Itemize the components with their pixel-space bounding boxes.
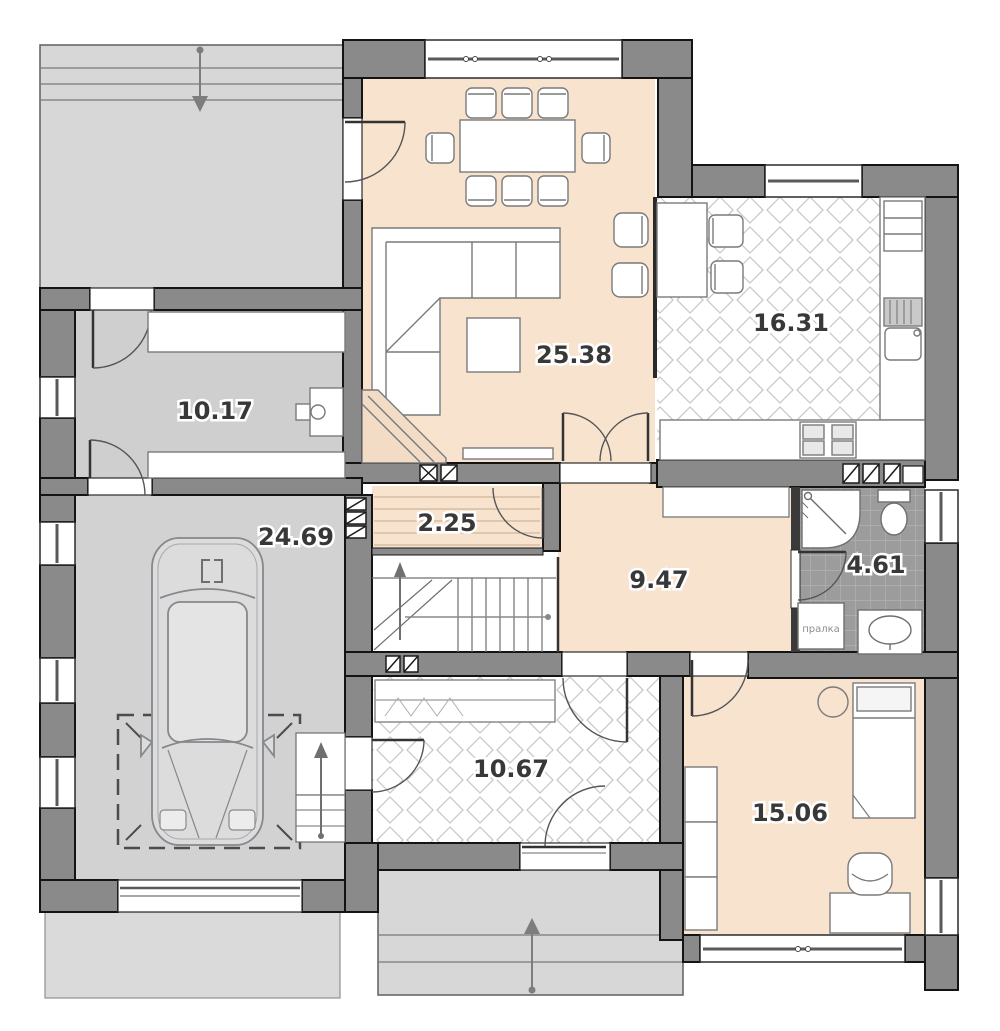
kitchen-counter-bottom — [660, 420, 925, 460]
terrace — [40, 45, 343, 303]
stove — [800, 422, 856, 458]
window-living — [425, 40, 622, 78]
bedroom-wardrobe — [685, 767, 717, 930]
stool — [818, 687, 848, 717]
label-washer: пралка — [802, 624, 840, 635]
garage-gate — [118, 880, 302, 912]
label-living: 25.38 — [536, 341, 612, 369]
label-entry: 10.67 — [473, 755, 549, 783]
label-garage: 24.69 — [258, 523, 334, 551]
window-garage-left-3 — [40, 757, 75, 808]
label-bedroom: 15.06 — [752, 799, 828, 827]
label-kitchen: 16.31 — [753, 309, 829, 337]
tv-bench — [463, 448, 553, 459]
window-bedroom-bottom — [700, 935, 905, 962]
desk-chair — [848, 853, 892, 895]
car — [141, 538, 274, 845]
window-bedroom-right — [925, 878, 958, 935]
label-closet: 2.25 — [417, 509, 476, 537]
shower — [802, 490, 860, 548]
toilet — [878, 490, 910, 535]
dining-table — [460, 120, 575, 172]
driveway — [45, 912, 340, 998]
floor-plan-drawing: 25.38 16.31 10.17 24.69 2.25 9.47 4.61 1… — [0, 0, 1000, 1031]
window-utility-left — [40, 377, 75, 418]
vent-garage-wall — [346, 498, 366, 538]
window-garage-left-1 — [40, 522, 75, 565]
kitchen-table — [657, 203, 707, 297]
entrance-porch — [378, 870, 683, 995]
window-garage-left-2 — [40, 658, 75, 703]
window-bathroom — [925, 490, 958, 543]
label-utility: 10.17 — [177, 397, 253, 425]
floor-plan-page: 25.38 16.31 10.17 24.69 2.25 9.47 4.61 1… — [0, 0, 1000, 1031]
coffee-table — [467, 318, 520, 372]
entry-wardrobe — [375, 680, 555, 722]
label-hall: 9.47 — [629, 566, 688, 594]
bed — [853, 683, 915, 818]
utility-counter-top — [148, 312, 345, 352]
window-kitchen — [765, 165, 862, 197]
hall-closet — [663, 487, 789, 517]
kitchen-sink — [884, 298, 922, 360]
garage-steps — [296, 733, 345, 842]
desk — [830, 893, 910, 933]
bathroom-sink — [858, 610, 922, 654]
utility-counter-bottom — [148, 452, 345, 478]
fridge — [884, 201, 922, 251]
label-bathroom: 4.61 — [846, 551, 905, 579]
